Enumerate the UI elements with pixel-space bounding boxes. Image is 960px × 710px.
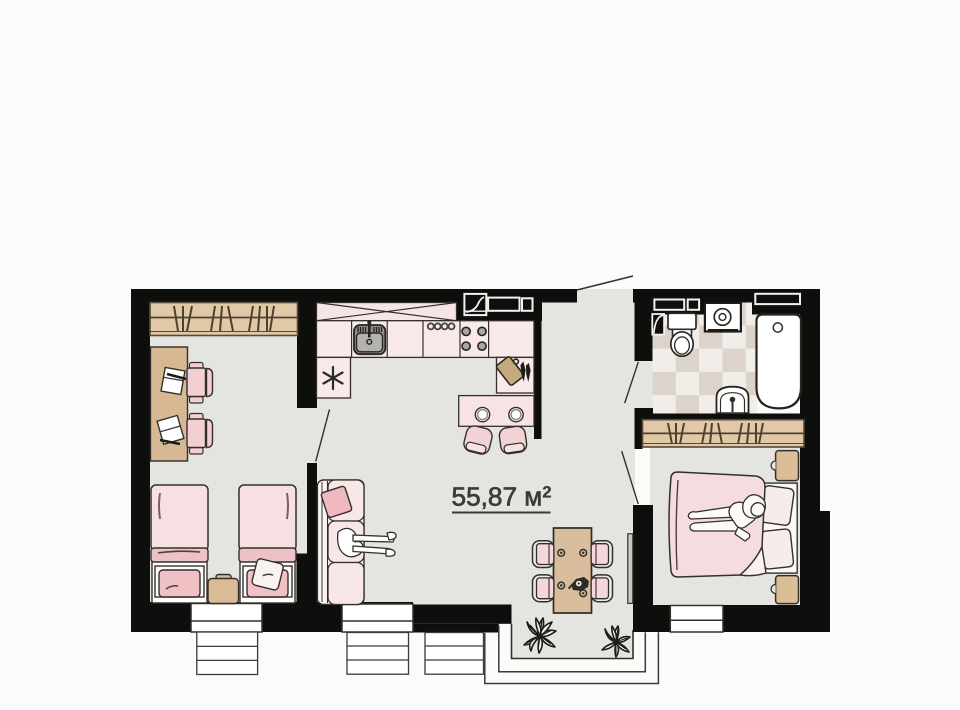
svg-text:55,87 м2: 55,87 м2 (452, 482, 552, 512)
